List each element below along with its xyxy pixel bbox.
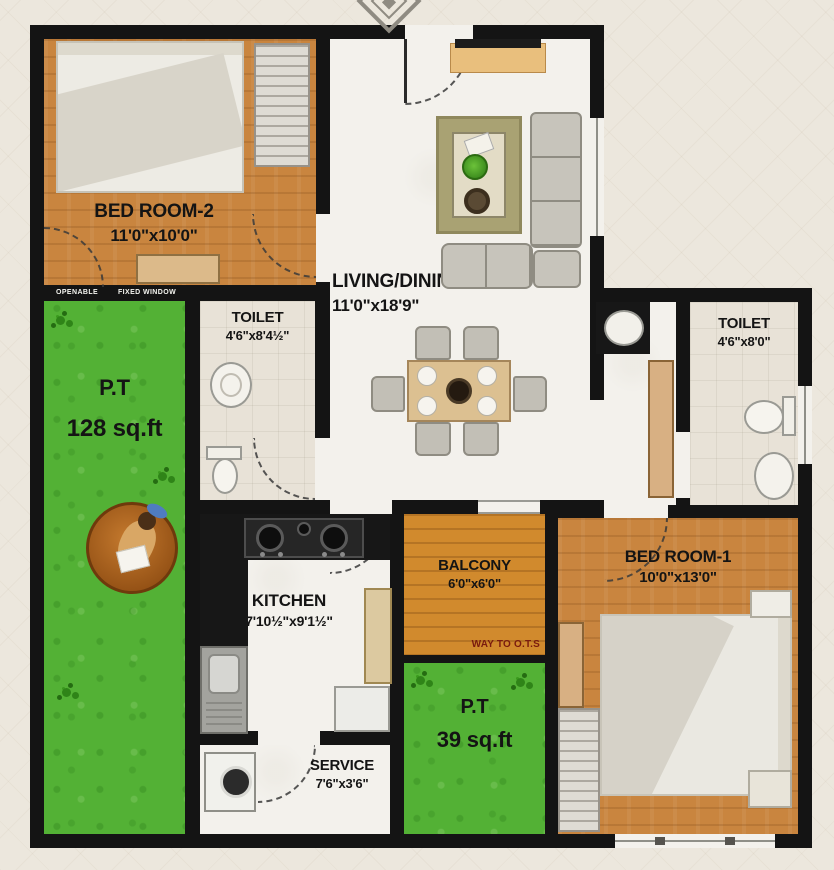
wardrobe-icon: [254, 43, 310, 167]
grass-tuft-icon: [62, 688, 71, 697]
room-name-label: TOILET: [200, 308, 315, 328]
room-dims-label: 7'6"x3'6": [292, 776, 392, 793]
burner-icon: [256, 524, 284, 552]
bed-headboard: [58, 43, 242, 55]
room-name-label: BALCONY: [404, 556, 545, 576]
wc-toilet-icon: [744, 400, 784, 434]
wall-segment: [185, 301, 200, 834]
room-dims-label: 39 sq.ft: [404, 726, 545, 755]
room-dims-label: 128 sq.ft: [44, 413, 185, 444]
tv-icon: [455, 39, 541, 48]
room-name-label: P.T: [404, 694, 545, 720]
service-door-gap: [258, 731, 320, 745]
loveseat-icon: [441, 243, 533, 289]
kitchen-door-gap: [330, 500, 392, 514]
balcony-slider-gap: [478, 500, 540, 514]
bedroom-1-label: BED ROOM-1 10'0"x13'0": [558, 546, 798, 588]
bowl-icon: [464, 188, 490, 214]
washing-machine-icon: [204, 752, 256, 812]
kitchen-cabinet-icon: [364, 588, 392, 684]
toilet-left-label: TOILET 4'6"x8'4½": [200, 308, 315, 344]
pt-left-label: P.T 128 sq.ft: [44, 374, 185, 444]
toilet-left-door-gap: [315, 438, 330, 500]
wall-segment: [200, 500, 604, 514]
floor-plan-page: { "plan": { "type": "apartment-floor-pla…: [0, 0, 834, 870]
sink-icon: [200, 646, 248, 734]
basin-bowl: [220, 373, 242, 397]
room-name-label: BED ROOM-1: [558, 546, 798, 568]
toilet-right-window-icon: [798, 386, 812, 464]
bed-blanket: [56, 53, 244, 193]
window-pane-line: [596, 118, 598, 236]
bedroom-2-door-gap: [316, 214, 330, 282]
room-name-label: SERVICE: [292, 756, 392, 776]
bed-headboard: [778, 616, 790, 794]
dresser-icon: [136, 254, 220, 284]
service-label: SERVICE 7'6"x3'6": [292, 756, 392, 792]
window-pane-line: [615, 840, 775, 842]
bedroom-2-label: BED ROOM-2 11'0"x10'0": [44, 200, 264, 247]
window-tick: [725, 837, 735, 845]
centerpiece-bowl-icon: [446, 378, 472, 404]
grass-tuft-icon: [158, 472, 167, 481]
stove-icon: [244, 518, 364, 558]
plate-icon: [477, 396, 497, 416]
room-dims-label: 11'0"x10'0": [44, 225, 264, 247]
openable-window-label: OPENABLE: [56, 289, 98, 296]
plate-icon: [477, 366, 497, 386]
toilet-right-label: TOILET 4'6"x8'0": [690, 314, 798, 350]
way-to-ots-label: WAY TO O.T.S: [430, 638, 540, 651]
grass-tuft-icon: [416, 676, 425, 685]
sink-drainboard: [206, 702, 242, 730]
wall-segment: [30, 25, 44, 848]
balcony-label: BALCONY 6'0"x6'0": [404, 556, 545, 592]
toilet-right-door-gap: [676, 432, 690, 498]
dining-chair-icon: [463, 326, 499, 360]
nightstand-icon: [748, 770, 792, 808]
bedroom-1-door-leaf: [558, 622, 584, 708]
window-tick: [655, 837, 665, 845]
grass-tuft-icon: [56, 316, 65, 325]
sink-basin: [208, 654, 240, 694]
dining-chair-icon: [371, 376, 405, 412]
wc-toilet-icon: [782, 396, 796, 436]
fixed-window-label: FIXED WINDOW: [118, 289, 176, 296]
plant-icon: [462, 154, 488, 180]
dining-chair-icon: [415, 422, 451, 456]
plate-icon: [417, 396, 437, 416]
wardrobe-icon: [558, 708, 600, 832]
washbasin-icon: [604, 310, 644, 346]
sofa-chaise-icon: [533, 250, 581, 288]
double-bed-icon: [56, 41, 244, 193]
room-name-label: P.T: [44, 374, 185, 403]
room-dims-label: 4'6"x8'0": [690, 334, 798, 351]
pt-small-label: P.T 39 sq.ft: [404, 694, 545, 755]
living-window-icon: [590, 118, 604, 236]
burner-icon: [320, 524, 348, 552]
wall-segment: [390, 514, 404, 834]
passage-entry-gap: [590, 400, 604, 500]
washer-door-icon: [220, 766, 252, 798]
dining-chair-icon: [463, 422, 499, 456]
burner-icon: [297, 522, 311, 536]
kitchen-counter: [200, 560, 248, 646]
room-name-label: TOILET: [690, 314, 798, 334]
wall-segment: [604, 288, 812, 302]
wall-segment: [404, 655, 545, 663]
toilet-right-door-leaf: [648, 360, 674, 498]
sofa-icon: [530, 112, 582, 248]
wall-segment: [545, 514, 558, 834]
grass-tuft-icon: [516, 678, 525, 687]
room-dims-label: 6'0"x6'0": [404, 576, 545, 593]
room-name-label: BED ROOM-2: [44, 200, 264, 225]
washbasin-icon: [210, 362, 252, 408]
stove-knobs: [260, 552, 265, 557]
nightstand-icon: [750, 590, 792, 618]
washbasin-icon: [754, 452, 794, 500]
wall-segment: [30, 25, 604, 39]
wall-segment: [558, 505, 812, 518]
plate-icon: [417, 366, 437, 386]
wc-toilet-icon: [212, 458, 238, 494]
room-dims-label: 4'6"x8'4½": [200, 328, 315, 345]
room-dims-label: 11'0"x18'9": [332, 295, 482, 317]
bed-blanket: [600, 614, 734, 796]
dining-chair-icon: [513, 376, 547, 412]
double-bed-icon: [600, 614, 792, 796]
wall-segment: [798, 288, 812, 848]
bedroom-1-door-gap: [604, 505, 668, 518]
bedroom-1-window-icon: [615, 834, 775, 848]
entrance-door-gap: [405, 25, 473, 39]
window-pane-line: [804, 386, 806, 464]
dining-chair-icon: [415, 326, 451, 360]
room-dims-label: 10'0"x13'0": [558, 568, 798, 588]
fridge-icon: [334, 686, 390, 732]
